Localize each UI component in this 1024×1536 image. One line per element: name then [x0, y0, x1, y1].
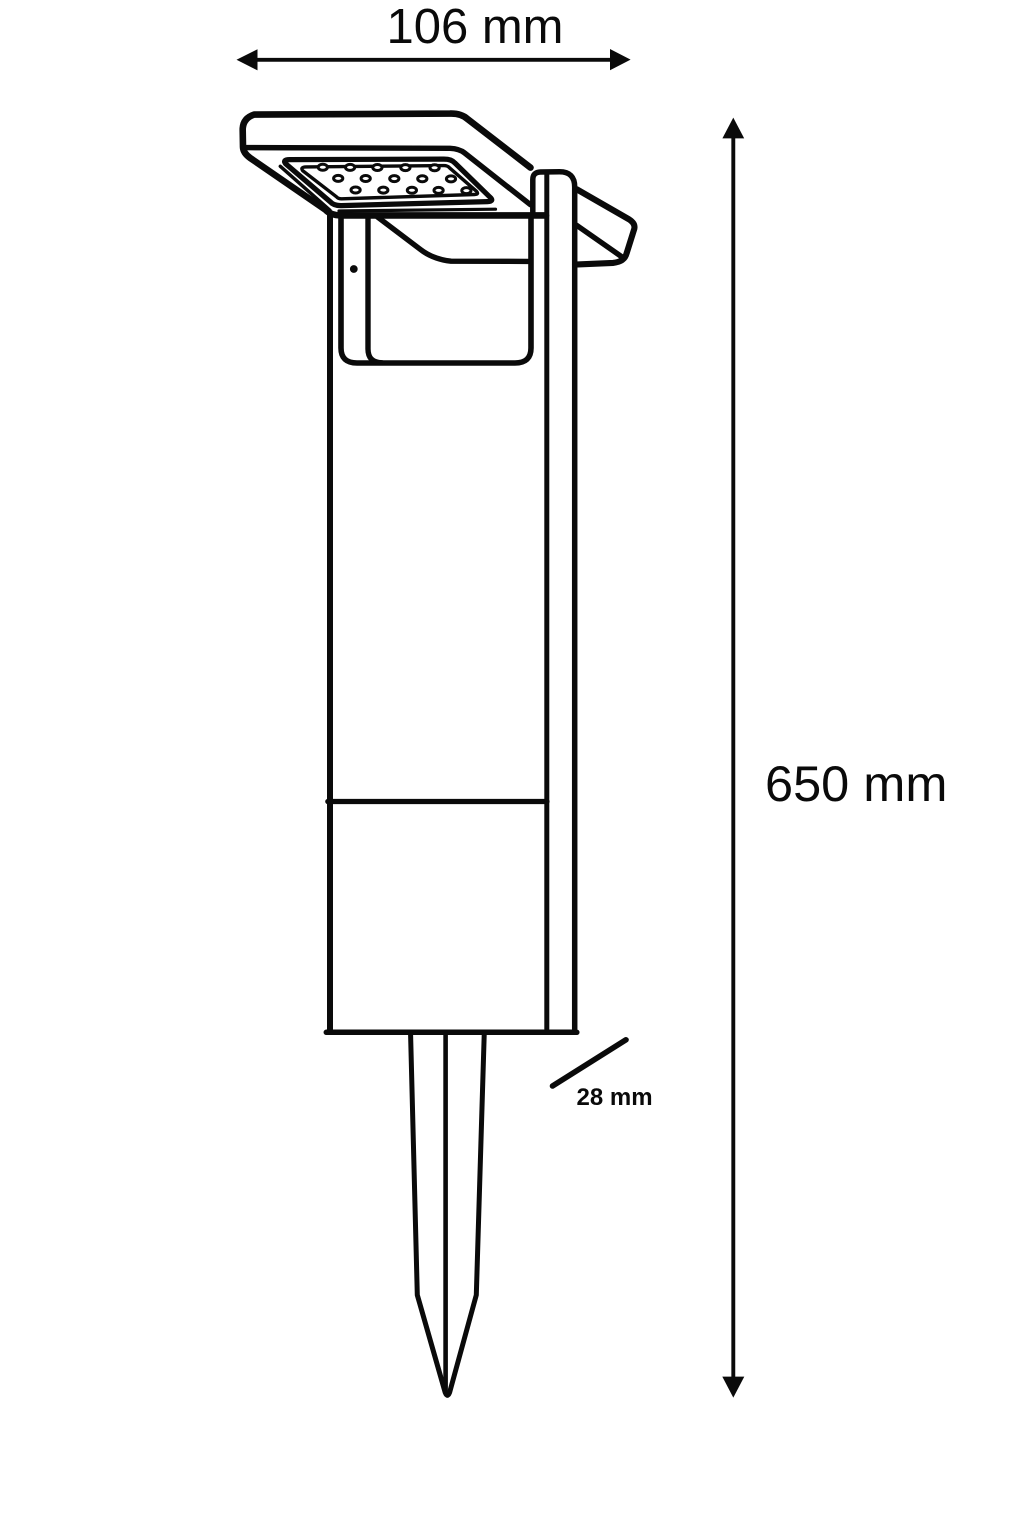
- svg-text:650 mm: 650 mm: [765, 755, 947, 812]
- svg-text:106 mm: 106 mm: [387, 0, 564, 54]
- svg-text:28 mm: 28 mm: [577, 1084, 653, 1111]
